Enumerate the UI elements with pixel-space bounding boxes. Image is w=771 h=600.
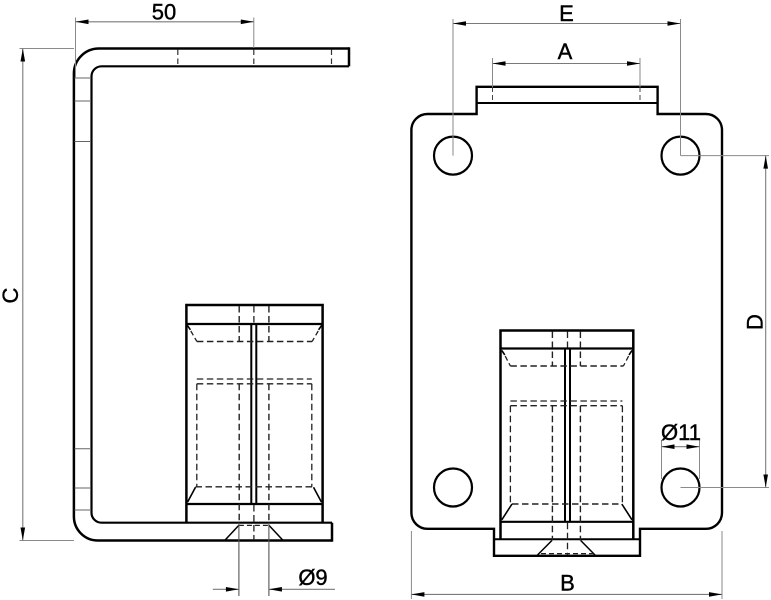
svg-text:50: 50: [152, 0, 176, 25]
svg-text:D: D: [743, 314, 768, 330]
svg-text:A: A: [558, 39, 573, 64]
svg-text:B: B: [560, 571, 575, 596]
svg-text:E: E: [559, 1, 574, 26]
svg-text:C: C: [0, 287, 23, 303]
svg-text:Ø9: Ø9: [298, 565, 327, 590]
svg-text:Ø11: Ø11: [661, 420, 701, 445]
